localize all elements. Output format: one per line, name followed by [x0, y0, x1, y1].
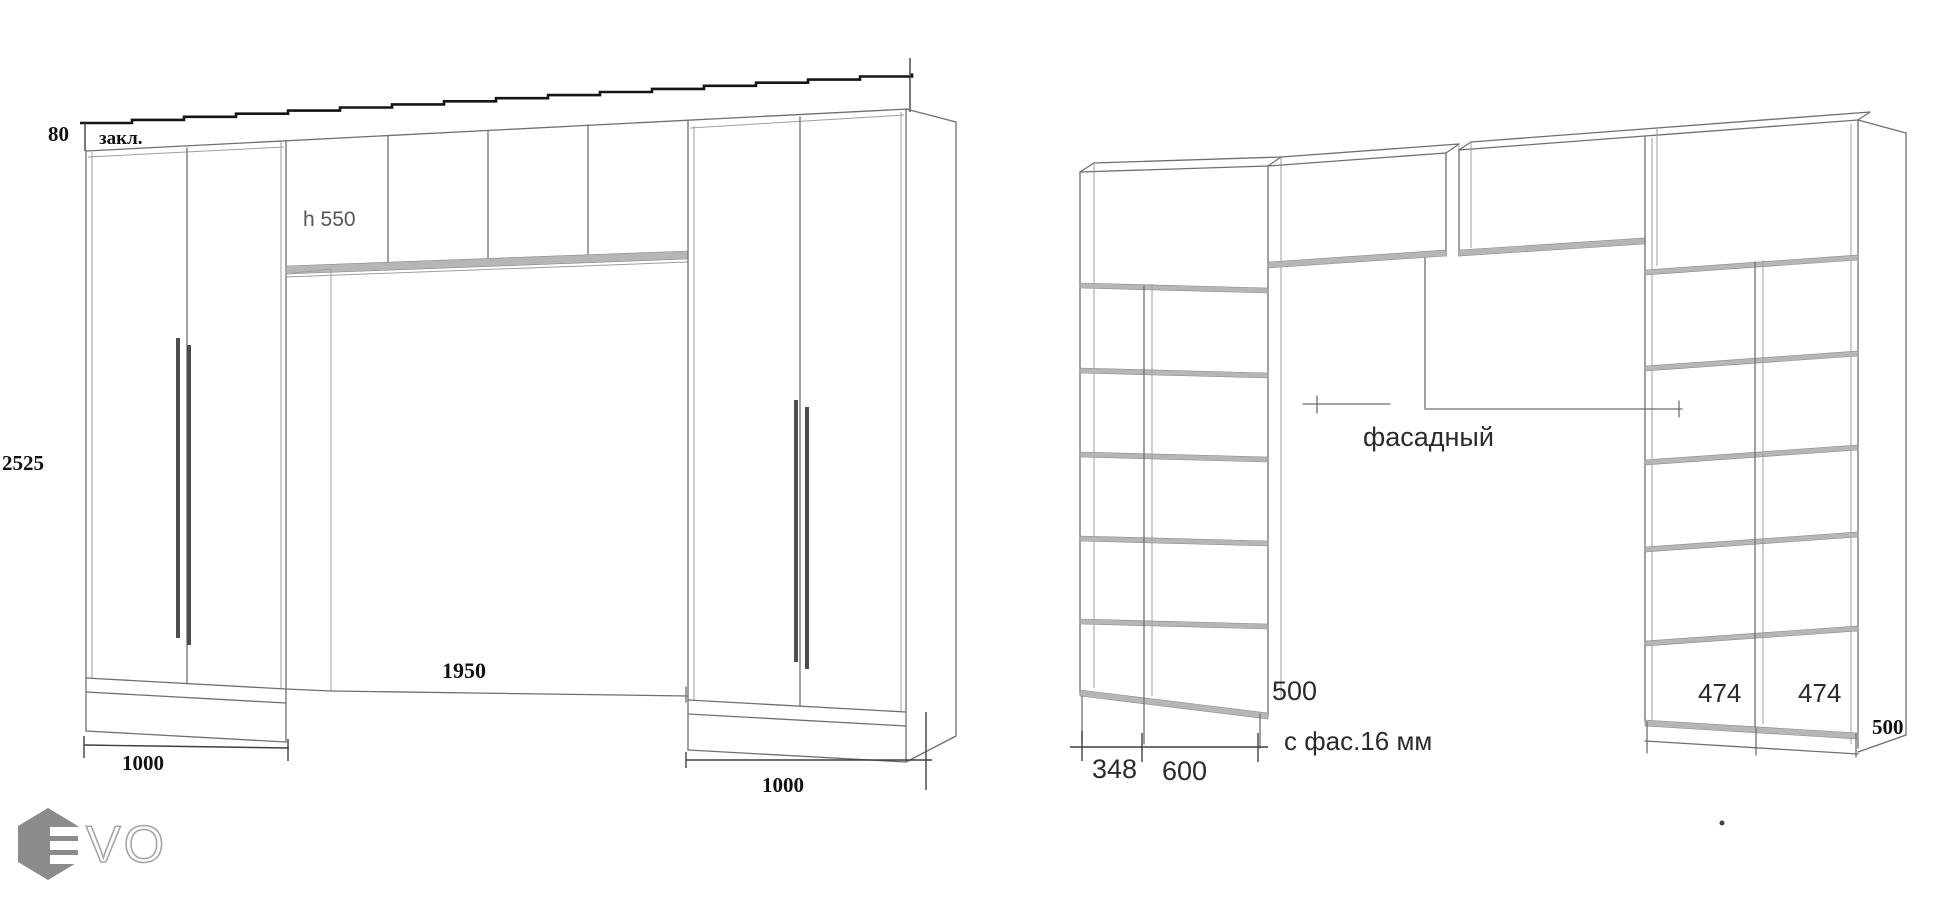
- left-view-dimensions: 80 закл. h 550 2525 1950 1000 1000: [2, 122, 932, 797]
- facade-leader-lines: [1303, 258, 1682, 417]
- label-opening-width: 1950: [442, 658, 486, 683]
- right-wardrobe-handle: [794, 400, 798, 662]
- wardrobe-front-view: 80 закл. h 550 2525 1950 1000 1000: [2, 58, 956, 797]
- carcass-right-tower: [1645, 112, 1906, 757]
- label-facade-note: с фас.16 мм: [1284, 726, 1432, 756]
- label-facade: фасадный: [1363, 422, 1494, 452]
- niche-floor-line: [331, 691, 688, 696]
- drawing-canvas: 80 закл. h 550 2525 1950 1000 1000: [0, 0, 1939, 900]
- niche-opening: [286, 269, 688, 702]
- logo-wordmark: VO: [86, 816, 167, 874]
- label-top-strip: закл.: [99, 128, 143, 149]
- stray-dot: [1720, 821, 1725, 826]
- label-cell2-width: 474: [1798, 678, 1841, 708]
- carcass-view: фасадный 500 348 600 с фас.16 мм 474 474…: [1070, 112, 1906, 826]
- carcass-left-tower: [1080, 157, 1281, 748]
- unit-top-edge: [86, 109, 908, 151]
- left-wardrobe-handle: [176, 338, 180, 638]
- label-col2-width: 600: [1162, 756, 1207, 786]
- furniture-technical-drawing: 80 закл. h 550 2525 1950 1000 1000: [0, 0, 1939, 900]
- right-wardrobe: [688, 109, 956, 762]
- left-tower-base: [1080, 690, 1268, 719]
- logo-e-bar: [50, 827, 84, 836]
- label-right-unit-width: 1000: [762, 773, 804, 797]
- bridge-bottom-shelf: [286, 251, 688, 274]
- label-total-height: 2525: [2, 451, 44, 475]
- logo-e-bar: [50, 855, 84, 864]
- right-tower-base: [1645, 720, 1858, 739]
- label-left-unit-width: 1000: [122, 751, 164, 775]
- label-col1-width: 348: [1092, 754, 1137, 784]
- label-cell1-width: 474: [1698, 678, 1741, 708]
- right-wardrobe-handle: [805, 407, 809, 669]
- label-left-tower-depth: 500: [1272, 676, 1317, 706]
- upper-bridge-cabinets: [286, 125, 688, 277]
- label-top-thickness: 80: [48, 122, 69, 146]
- left-wardrobe: [86, 141, 286, 742]
- label-right-tower-depth: 500: [1872, 715, 1904, 739]
- carcass-bridge-boxes: [1268, 128, 1657, 268]
- evo-logo: VO: [18, 808, 167, 880]
- left-wardrobe-handle: [187, 345, 191, 645]
- logo-e-bar: [50, 841, 84, 850]
- label-upper-cabinet-height: h 550: [303, 208, 356, 231]
